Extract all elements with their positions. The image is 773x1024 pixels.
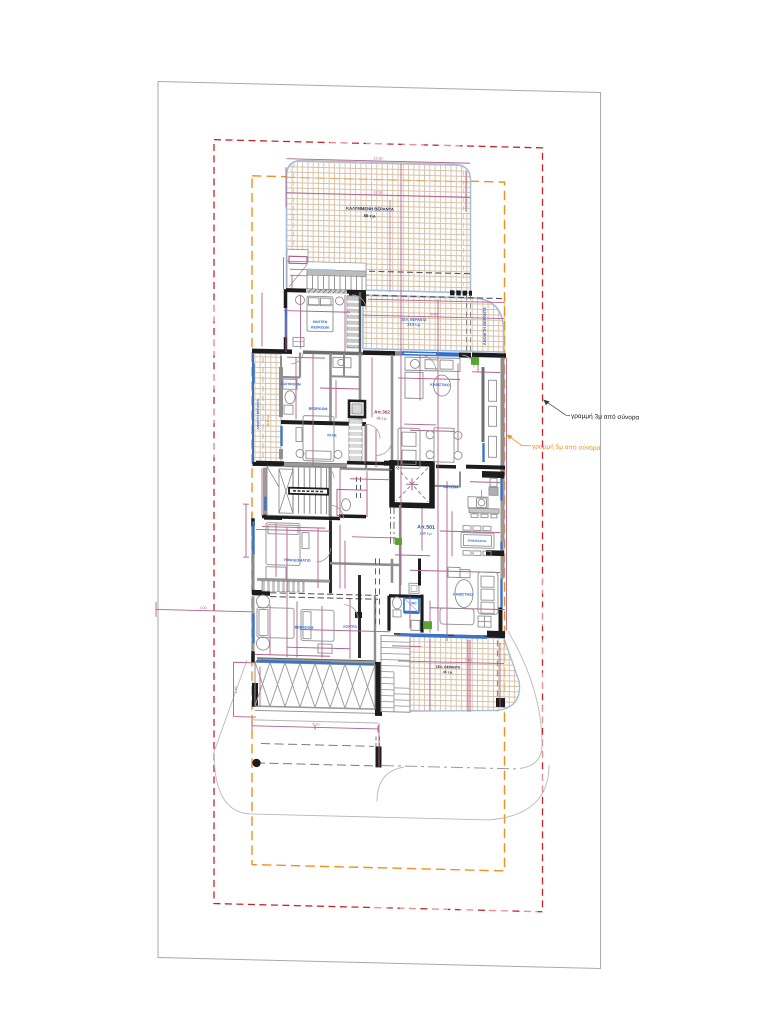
svg-text:BATHROOM: BATHROOM (281, 382, 301, 386)
svg-text:59 τ.μ.: 59 τ.μ. (364, 213, 377, 218)
svg-text:ΑΝΟΙΚΤΗ ΒΕΡΑΝΤΑ: ΑΝΟΙΚΤΗ ΒΕΡΑΝΤΑ (482, 307, 487, 345)
svg-text:95 τ.μ.: 95 τ.μ. (376, 416, 387, 420)
svg-text:ΤΡΑΠΕΖΑΡΙΑ: ΤΡΑΠΕΖΑΡΙΑ (468, 539, 488, 543)
svg-text:10.5 τ.μ.: 10.5 τ.μ. (266, 414, 270, 426)
svg-text:ΑΝΟΙΚΤΗ ΒΕΡΑΝΤΑ: ΑΝΟΙΚΤΗ ΒΕΡΑΝΤΑ (256, 399, 260, 430)
svg-text:ΚΑΘΙΣΤΙΚΟ: ΚΑΘΙΣΤΙΚΟ (453, 592, 473, 596)
svg-text:45 τ.μ.: 45 τ.μ. (443, 670, 453, 674)
svg-text:9.40: 9.40 (431, 312, 438, 316)
svg-text:γραμμή 3μ από σύνορα: γραμμή 3μ από σύνορα (571, 412, 640, 422)
svg-text:BEDROOM: BEDROOM (311, 325, 329, 329)
svg-text:ΛΟΥΤΡΟ: ΛΟΥΤΡΟ (343, 625, 357, 629)
svg-text:Απ.302: Απ.302 (374, 409, 390, 414)
svg-text:MASTER: MASTER (313, 320, 328, 324)
svg-text:3.00: 3.00 (200, 606, 207, 610)
svg-text:134 τ.μ.: 134 τ.μ. (419, 531, 432, 535)
svg-text:BLUE: BLUE (327, 433, 337, 437)
svg-text:BEDROOM: BEDROOM (309, 407, 328, 411)
svg-text:1.50: 1.50 (234, 686, 238, 693)
svg-text:WC: WC (411, 601, 417, 605)
svg-text:8.10: 8.10 (313, 722, 320, 726)
svg-text:ΥΠΝΟΔΩΜΑΤΙΟ: ΥΠΝΟΔΩΜΑΤΙΟ (283, 558, 310, 563)
svg-text:ΚΑΘΙΣΤΙΚΟ: ΚΑΘΙΣΤΙΚΟ (430, 383, 450, 387)
svg-text:ΣΕΛ. ΒΕΡΑΝΤΑ: ΣΕΛ. ΒΕΡΑΝΤΑ (401, 318, 427, 323)
svg-text:23.5 τ.μ.: 23.5 τ.μ. (407, 323, 420, 327)
svg-text:12.50: 12.50 (374, 156, 383, 160)
svg-text:BEDROOM: BEDROOM (295, 625, 314, 629)
svg-text:ΣΕΛ. ΒΕΡΑΝΤΑ: ΣΕΛ. ΒΕΡΑΝΤΑ (436, 665, 461, 670)
svg-text:Απ.501: Απ.501 (417, 524, 435, 530)
svg-text:12.50: 12.50 (374, 190, 383, 194)
svg-text:ΚΟΥΖΙΝΑ: ΚΟΥΖΙΝΑ (443, 485, 459, 489)
svg-text:7.40: 7.40 (465, 658, 472, 662)
